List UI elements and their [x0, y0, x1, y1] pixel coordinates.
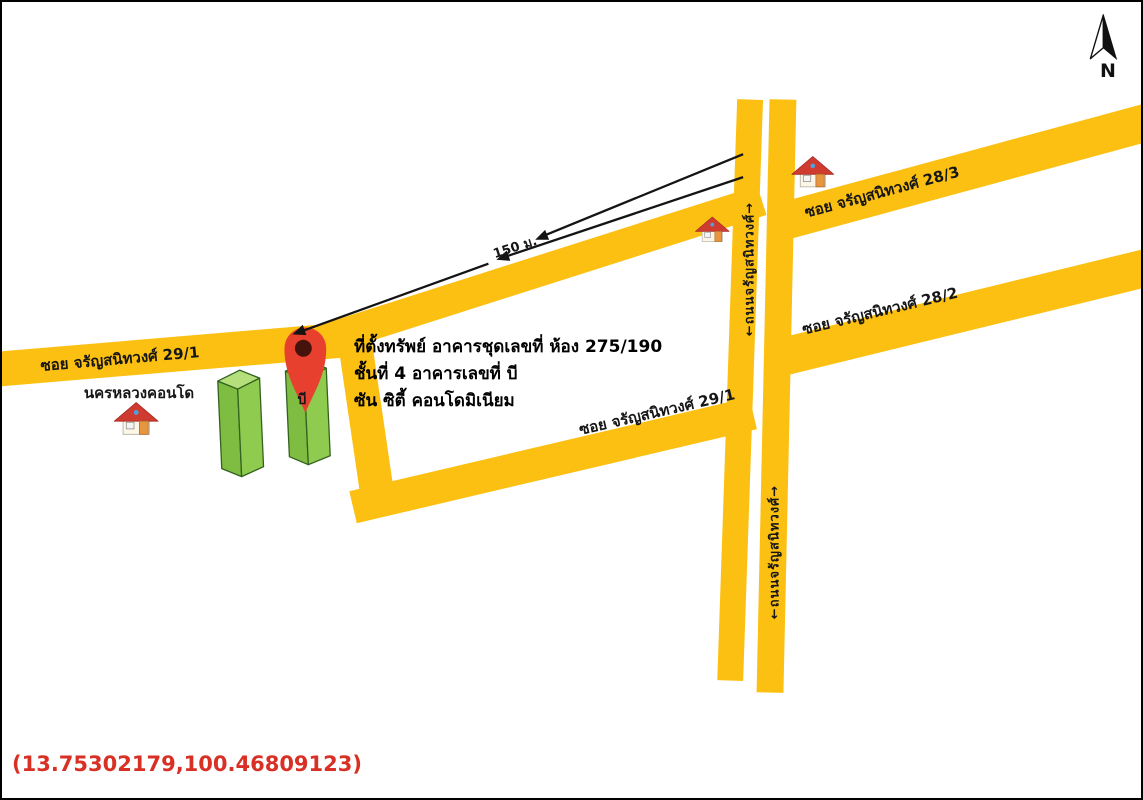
property-info-block: ที่ตั้งทรัพย์ อาคารชุดเลขที่ ห้อง 275/19… [354, 334, 662, 415]
house-icon [792, 157, 834, 187]
road-soi-29-1-climb [341, 205, 747, 334]
building-block-a [218, 370, 264, 476]
road-soi-29-1-loop-horizontal [369, 417, 737, 504]
arrowhead-upper-icon [535, 230, 549, 240]
property-info-line1: ที่ตั้งทรัพย์ อาคารชุดเลขที่ ห้อง 275/19… [354, 334, 662, 361]
road-label-main-lower: ←ถนนจรัญสนิทวงศ์→ [764, 485, 785, 619]
building-b-label: บี [298, 389, 307, 411]
map-canvas: N ซอย จรัญสนิทวงศ์ 29/1 ซอย จรัญสนิทวงศ์… [0, 0, 1143, 800]
building-a-front-face [238, 378, 264, 477]
north-label: N [1100, 60, 1116, 82]
property-info-line3: ซัน ซิตี้ คอนโดมิเนียม [354, 388, 662, 415]
property-info-line2: ชั้นที่ 4 อาคารเลขที่ บี [354, 361, 662, 388]
house-icon [114, 403, 158, 435]
gps-coordinates: (13.75302179,100.46809123) [12, 752, 362, 776]
pin-center-dot [295, 340, 312, 357]
north-arrow-icon [1090, 15, 1116, 59]
condo-nakornluang-label: นครหลวงคอนโด [84, 381, 194, 405]
road-label-main-upper: ←ถนนจรัญสนิทวงศ์→ [739, 202, 760, 336]
